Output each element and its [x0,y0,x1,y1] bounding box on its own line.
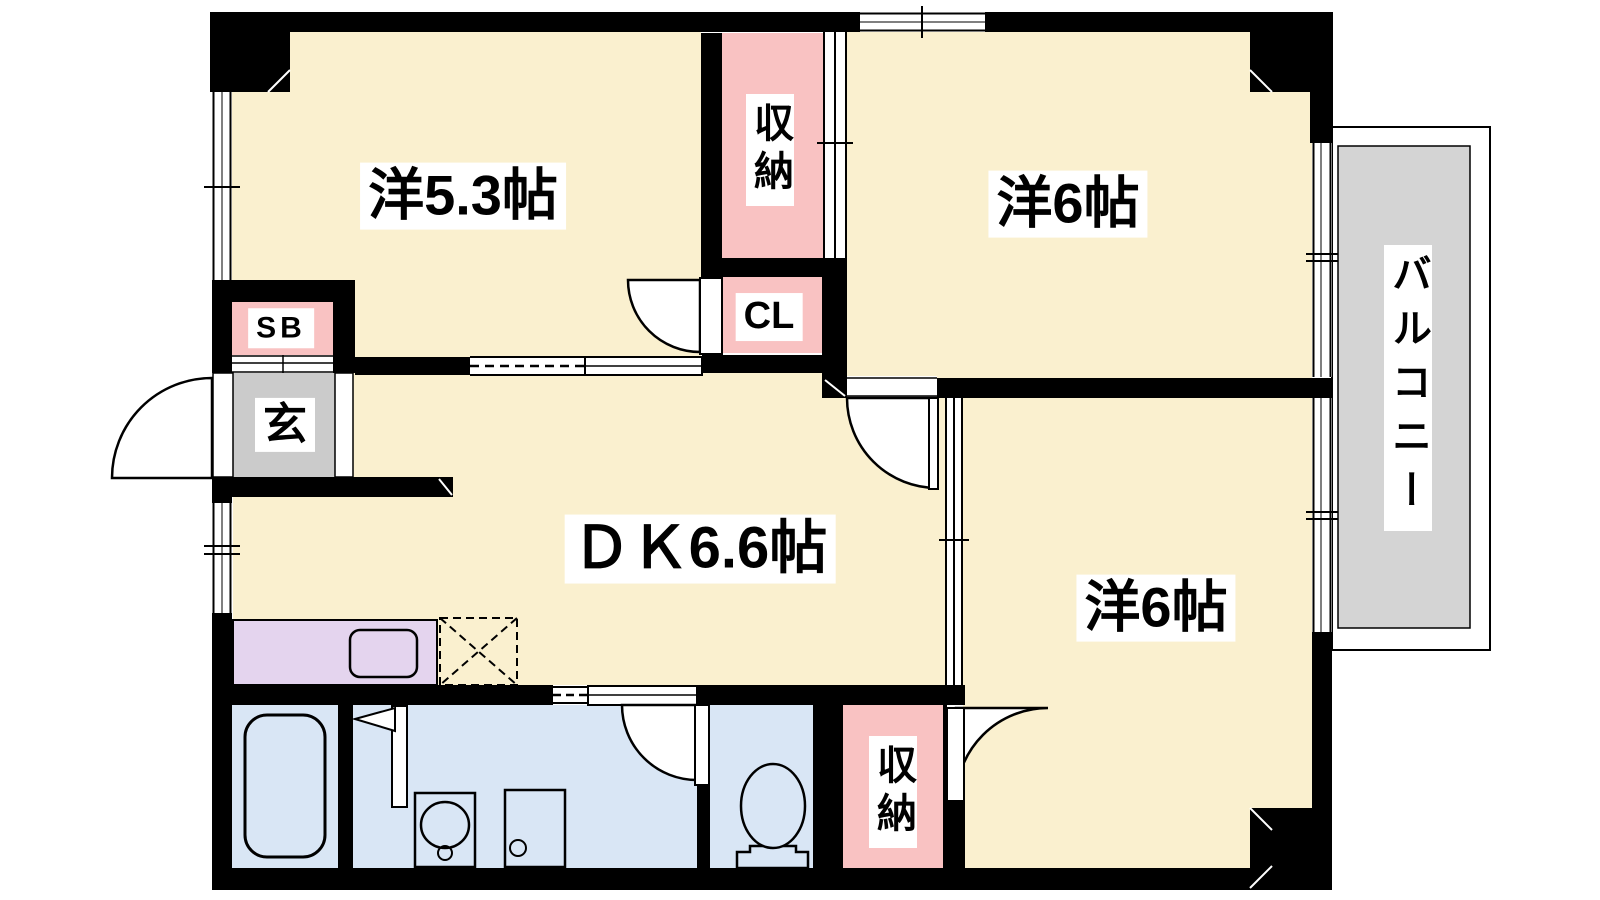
window-balcony-lower-glass [1312,398,1332,632]
label-closet: CL [736,293,803,341]
entrance-frame-right [335,373,353,477]
toilet-door-leaf [695,705,709,785]
wall-under-closet [702,355,823,373]
label-storage-lower: 収納 [869,736,917,848]
floor-plan-drawing [0,0,1600,900]
wall-shoebox-left [212,302,232,373]
label-room-western-6-lower: 洋6帖 [1076,575,1235,642]
sliding-door-w53-dk [470,357,702,375]
wall-kitchen-bath [212,685,553,705]
label-balcony: バルコニー [1384,245,1432,531]
wall-corner-top-left [210,12,290,92]
wall-toilet-storage-divider [813,705,843,868]
label-room-western-5-3: 洋5.3帖 [360,163,566,230]
label-shoe-box: SB [248,308,314,348]
floor-plan: 洋5.3帖 洋6帖 洋6帖 ＤＫ6.6帖 収納 収納 CL SB 玄 バルコニー [0,0,1600,900]
storage-lower-door-leaf [947,708,964,801]
toilet-bowl [741,764,805,848]
entrance-door-swing [112,378,212,478]
label-storage-upper: 収納 [746,94,794,206]
wall-right-upper-stub [1310,92,1333,143]
wall-below-entrance [212,477,453,497]
wall-w53-storage-divider [701,33,722,277]
sliding-door-dk-washroom [553,686,697,705]
closet-door-leaf [700,278,722,354]
wall-column-closet-right [822,258,847,398]
wall-bath-washroom-divider [338,705,353,868]
wall-over-toilet [697,685,965,705]
wall-w53-bottom-left [355,357,470,375]
wall-top [210,12,1333,32]
doorway-upper-west6-gap [847,376,937,398]
wall-shoebox-right [333,280,355,373]
label-entrance: 玄 [255,398,315,452]
wall-bottom [212,868,1312,890]
wall-left-lower [212,613,232,890]
upper-west6-door-leaf [929,398,938,489]
wall-storage-lower-right [943,800,965,868]
wall-storage-upper-bottom [702,258,823,277]
label-room-western-6-upper: 洋6帖 [988,171,1147,238]
wall-washroom-toilet-lower [697,783,710,868]
wall-corner-top-right [1250,12,1333,92]
entrance-frame-left [213,373,233,477]
doorway-upper-west6 [847,376,937,398]
wall-mid-right [937,378,1333,398]
label-room-dk: ＤＫ6.6帖 [565,515,836,584]
